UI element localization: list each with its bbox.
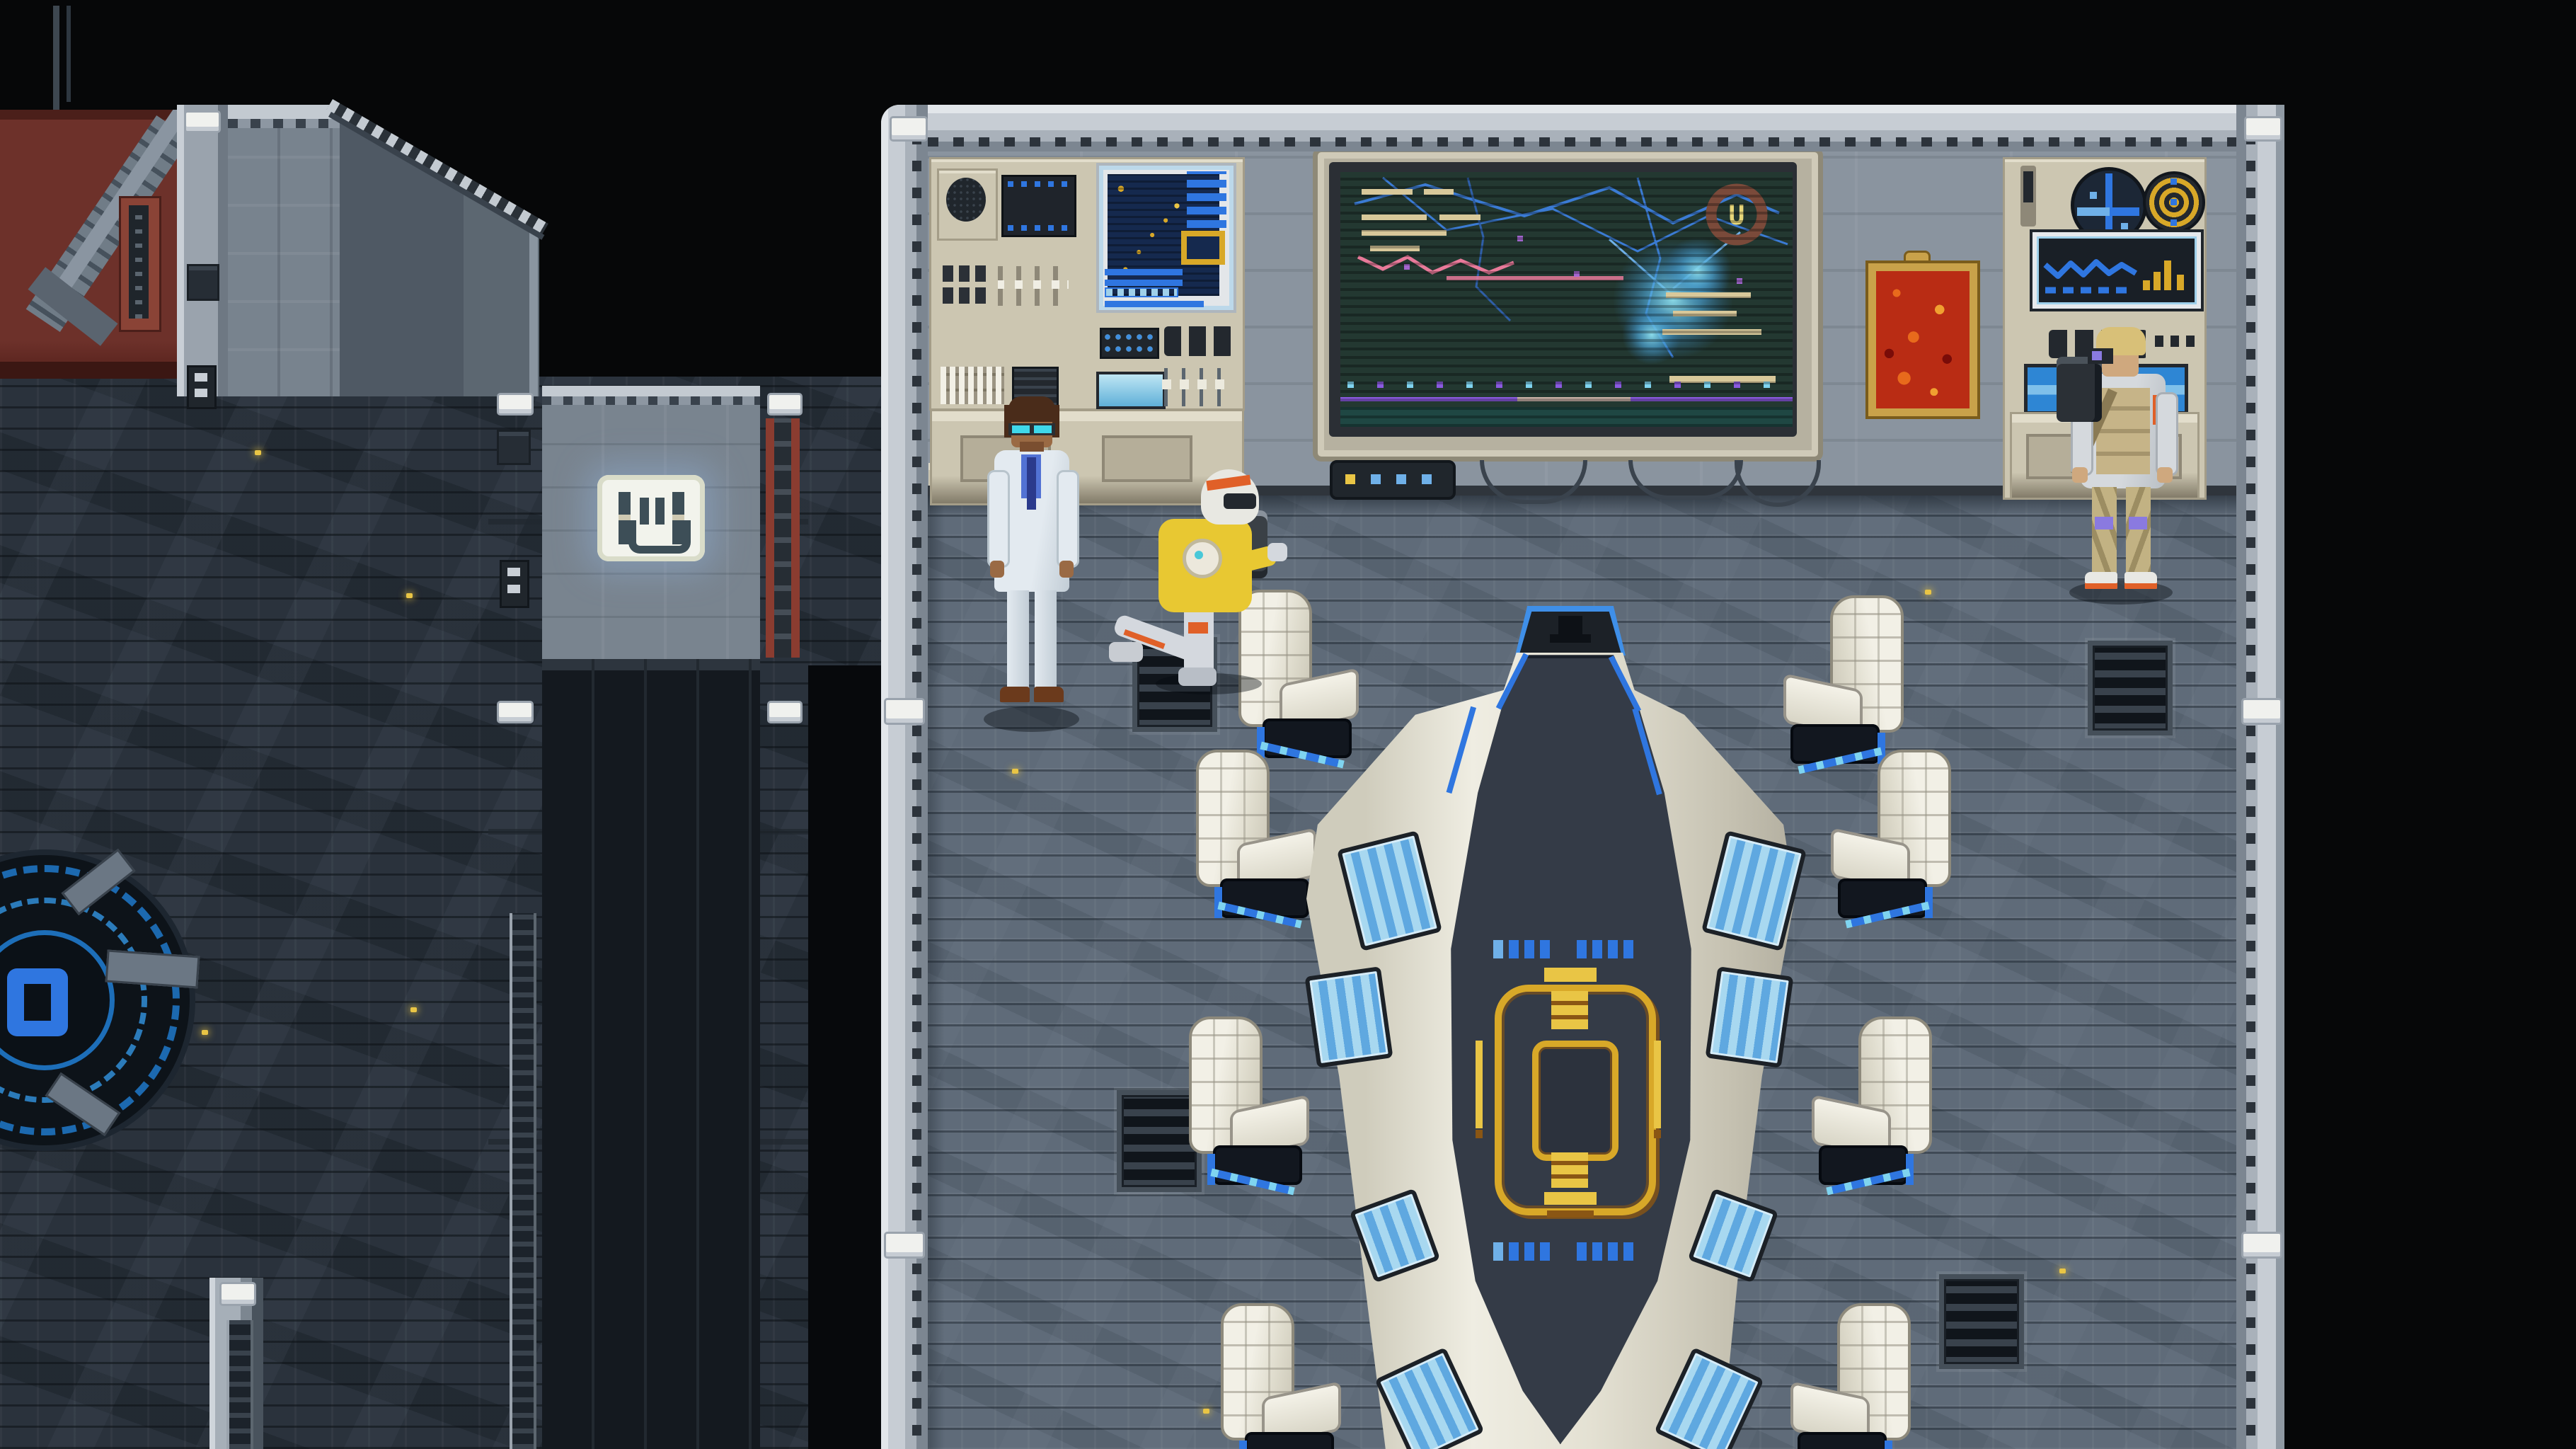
telemetry-monitor[interactable] bbox=[2032, 232, 2201, 309]
npc-soldier[interactable] bbox=[2052, 327, 2187, 610]
runner-visor bbox=[1224, 493, 1256, 509]
room-frame-top bbox=[881, 105, 2284, 151]
slider-bank[interactable] bbox=[998, 266, 1069, 306]
rail-tag bbox=[767, 701, 803, 723]
chair-base bbox=[1798, 1432, 1887, 1449]
table-light-bars bbox=[1577, 1242, 1639, 1261]
shaft-corridor bbox=[542, 659, 760, 1449]
shaft-left-rail bbox=[488, 386, 542, 1449]
waveform-monitor[interactable] bbox=[1001, 175, 1076, 237]
knob-row[interactable] bbox=[1164, 326, 1234, 356]
building-edge-trim bbox=[529, 225, 538, 396]
wall-switch[interactable] bbox=[187, 365, 217, 409]
floor-light-dot bbox=[1012, 769, 1018, 774]
conference-chair[interactable] bbox=[1787, 1299, 1911, 1449]
conference-chair[interactable] bbox=[1827, 745, 1951, 933]
gold-frame-readout bbox=[1181, 231, 1225, 265]
table-light-bars bbox=[1493, 940, 1556, 958]
rail-window bbox=[497, 430, 531, 465]
floor-light-dot bbox=[2059, 1268, 2066, 1273]
fader-bank[interactable] bbox=[1164, 368, 1235, 406]
pillar-window bbox=[187, 264, 219, 301]
rail-tag bbox=[497, 701, 534, 723]
telemetry-graphic bbox=[2037, 236, 2197, 304]
soldier-shoulder-scope bbox=[2057, 357, 2102, 422]
floor-light-dot bbox=[255, 450, 261, 455]
cyan-display bbox=[1096, 372, 1166, 409]
room-interior: U bbox=[928, 151, 2236, 1449]
table-prow bbox=[1519, 612, 1621, 654]
button-grid[interactable] bbox=[943, 265, 988, 304]
ladder-slot bbox=[119, 196, 161, 332]
vertical-slider[interactable] bbox=[2020, 166, 2036, 227]
conference-chair[interactable] bbox=[1189, 1012, 1313, 1200]
red-building: D7-Y bbox=[0, 110, 177, 379]
ladder-strip bbox=[226, 1320, 253, 1449]
building-pillar bbox=[177, 105, 228, 396]
frame-tag bbox=[890, 116, 928, 142]
led-panel bbox=[1100, 328, 1159, 359]
pillar-tag bbox=[184, 110, 221, 133]
table-light-bars bbox=[1493, 1242, 1556, 1261]
dashed-readout bbox=[1105, 287, 1178, 297]
floor-light-dot bbox=[1203, 1409, 1209, 1414]
ladder-strip[interactable] bbox=[510, 913, 536, 1449]
game-scene-briefing-room: D7-Y bbox=[0, 0, 2576, 1449]
table-light-bars bbox=[1577, 940, 1639, 958]
lava-painting[interactable] bbox=[1868, 263, 1977, 416]
emblem-inner-ring bbox=[1532, 1041, 1618, 1161]
speaker-grille bbox=[937, 168, 998, 241]
frame-tag bbox=[2241, 1232, 2282, 1259]
chair-leg-glow bbox=[1239, 1441, 1247, 1449]
rail-tag bbox=[497, 393, 534, 416]
nav-chart-monitor[interactable] bbox=[1096, 163, 1236, 313]
floor-light-dot bbox=[410, 1007, 417, 1012]
data-bars bbox=[1187, 171, 1226, 228]
elevator-track bbox=[766, 418, 800, 658]
control-room: U bbox=[881, 105, 2284, 1449]
progress-bar bbox=[1105, 301, 1204, 307]
indicator-panel bbox=[1330, 460, 1456, 500]
antenna-mast bbox=[67, 6, 71, 102]
antenna-mast bbox=[53, 6, 59, 112]
dial-gauge bbox=[2143, 171, 2205, 234]
hatch-core bbox=[7, 968, 68, 1036]
floor-light-dot bbox=[406, 593, 413, 598]
frame-tag bbox=[2244, 116, 2282, 142]
wall-base-shadow bbox=[0, 362, 177, 379]
npc-runner[interactable] bbox=[1116, 464, 1286, 697]
doctor-glasses bbox=[1008, 423, 1055, 435]
conference-chair[interactable] bbox=[1196, 745, 1320, 933]
data-rows bbox=[1105, 268, 1183, 286]
table-screen[interactable] bbox=[1705, 966, 1793, 1068]
void-gap bbox=[808, 665, 881, 1449]
rail-tag bbox=[767, 393, 803, 416]
sign-pictograph-icon bbox=[628, 520, 691, 554]
doctor-tie bbox=[1027, 457, 1036, 510]
chair-leg-glow bbox=[1885, 1441, 1892, 1449]
lower-rail-stub bbox=[209, 1278, 263, 1449]
console-bank-left bbox=[929, 157, 1241, 496]
floor-light-dot bbox=[1925, 590, 1931, 595]
gray-building-shadow-face bbox=[340, 106, 539, 396]
runner-emblem bbox=[1183, 539, 1222, 578]
conference-chair[interactable] bbox=[1808, 1012, 1932, 1200]
floor-vent bbox=[1939, 1274, 2024, 1369]
frame-tag bbox=[884, 698, 925, 725]
floor-vent bbox=[2088, 641, 2173, 735]
wall-switch[interactable] bbox=[500, 560, 529, 608]
elevator-wall bbox=[542, 386, 760, 659]
floor-light-dot bbox=[202, 1030, 208, 1035]
frame-tag bbox=[884, 1232, 925, 1259]
shaft-right-rail bbox=[760, 386, 808, 1449]
table-screen[interactable] bbox=[1304, 966, 1393, 1068]
gray-building-wall bbox=[228, 105, 340, 396]
frame-tag bbox=[2241, 698, 2282, 725]
main-viewscreen[interactable]: U bbox=[1313, 151, 1823, 462]
rail-tag bbox=[219, 1282, 256, 1306]
briefing-room-sign[interactable] bbox=[597, 475, 705, 561]
starmap-display: U bbox=[1340, 172, 1793, 427]
npc-doctor[interactable] bbox=[980, 396, 1083, 729]
hatch-arm bbox=[105, 949, 200, 988]
